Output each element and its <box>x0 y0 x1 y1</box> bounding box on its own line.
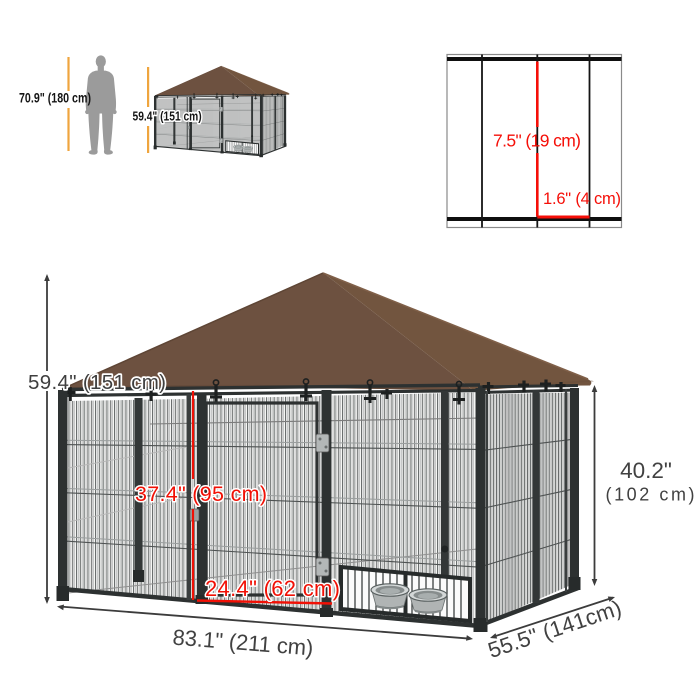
svg-text:37.4" (95 cm): 37.4" (95 cm) <box>135 482 267 506</box>
svg-text:7.5" (19 cm): 7.5" (19 cm) <box>493 131 581 151</box>
svg-text:59.4" (151 cm): 59.4" (151 cm) <box>133 111 202 124</box>
svg-text:59.4" (151 cm): 59.4" (151 cm) <box>28 371 166 394</box>
svg-text:70.9" (180 cm): 70.9" (180 cm) <box>19 90 91 106</box>
svg-text:40.2": 40.2" <box>620 458 672 483</box>
svg-text:1.6" (4 cm): 1.6" (4 cm) <box>543 190 621 208</box>
svg-text:24.4" (62 cm): 24.4" (62 cm) <box>205 576 340 601</box>
